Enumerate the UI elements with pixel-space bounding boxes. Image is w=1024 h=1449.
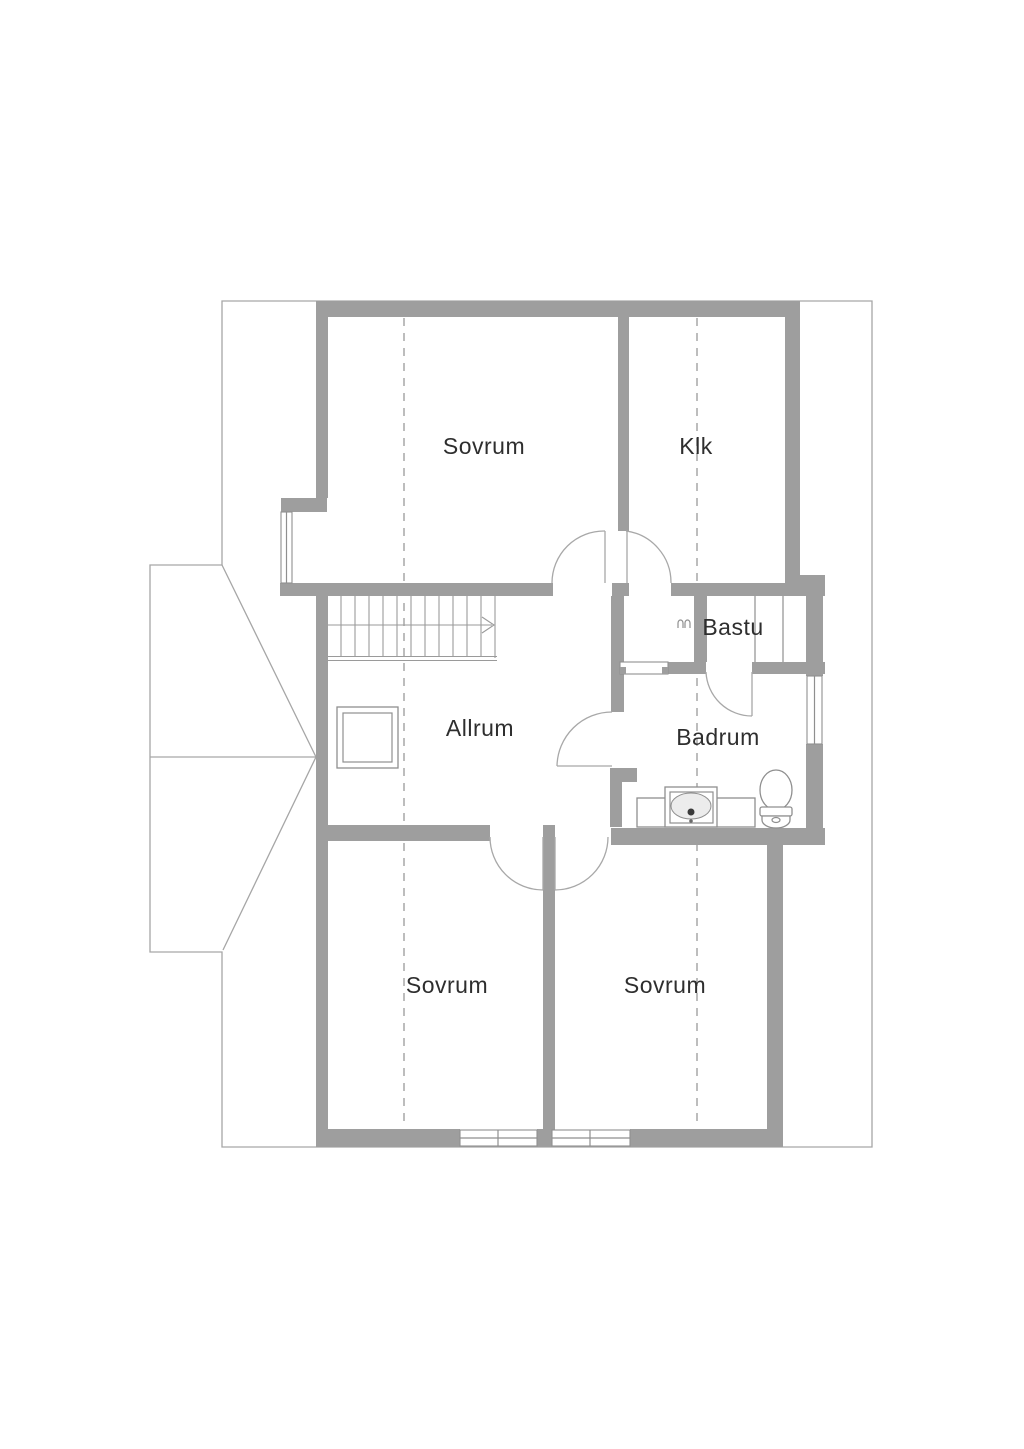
room-label-allrum: Allrum bbox=[446, 715, 514, 741]
wall-segment bbox=[316, 825, 490, 841]
room-label-sovrum-bottom-left: Sovrum bbox=[406, 972, 488, 998]
room-label-sovrum-bottom-right: Sovrum bbox=[624, 972, 706, 998]
room-label-bastu: Bastu bbox=[702, 614, 763, 640]
wall-pillar bbox=[610, 768, 637, 827]
door-bastu bbox=[706, 672, 752, 716]
wall-segment bbox=[611, 596, 624, 712]
stairs-up-icon bbox=[328, 596, 497, 661]
sink-icon bbox=[665, 787, 717, 827]
wall-segment bbox=[316, 1129, 460, 1147]
wall-segment bbox=[281, 498, 327, 512]
chimney-icon bbox=[337, 707, 398, 768]
wall-segment bbox=[612, 583, 629, 596]
window-badrum bbox=[807, 676, 822, 744]
door-sovrum-bottom-left bbox=[490, 837, 543, 890]
wall-segment bbox=[611, 662, 620, 674]
room-label-badrum: Badrum bbox=[676, 724, 760, 750]
room-label-klk: Klk bbox=[679, 433, 712, 459]
room-label-sovrum-top: Sovrum bbox=[443, 433, 525, 459]
roof-hip-lines bbox=[150, 565, 316, 950]
floor-plan-drawing: Sovrum Klk Bastu Allrum Badrum Sovrum So… bbox=[0, 0, 1024, 1449]
wall-segment bbox=[668, 662, 706, 674]
wall-segment bbox=[281, 583, 553, 596]
wall-segment bbox=[630, 1129, 783, 1147]
wall-segment bbox=[618, 317, 629, 531]
wall-segment bbox=[543, 825, 555, 1132]
window-bottom-left bbox=[460, 1130, 537, 1146]
door-sovrum-bottom-right bbox=[555, 837, 608, 890]
window-left bbox=[281, 512, 292, 583]
floor-plan-page: Sovrum Klk Bastu Allrum Badrum Sovrum So… bbox=[0, 0, 1024, 1449]
bathroom-fixtures bbox=[637, 770, 792, 828]
window-bottom-right bbox=[552, 1130, 630, 1146]
wall-segment bbox=[785, 575, 825, 596]
wall-segment bbox=[316, 596, 328, 1147]
wall-segment bbox=[785, 301, 800, 575]
toilet-icon bbox=[760, 770, 792, 828]
room-labels: Sovrum Klk Bastu Allrum Badrum Sovrum So… bbox=[406, 433, 764, 998]
wall-segment bbox=[316, 301, 800, 317]
wall-segment bbox=[611, 828, 825, 845]
wall-segment bbox=[316, 301, 328, 498]
wall-segment bbox=[767, 833, 783, 1147]
wall-segment bbox=[537, 1129, 552, 1147]
wall-segment bbox=[806, 596, 823, 676]
door-badrum bbox=[557, 712, 612, 766]
door-sovrum-top bbox=[552, 531, 605, 583]
door-klk bbox=[626, 531, 671, 583]
cased-opening-threshold bbox=[620, 662, 668, 674]
sauna-heater-icon bbox=[678, 620, 690, 628]
